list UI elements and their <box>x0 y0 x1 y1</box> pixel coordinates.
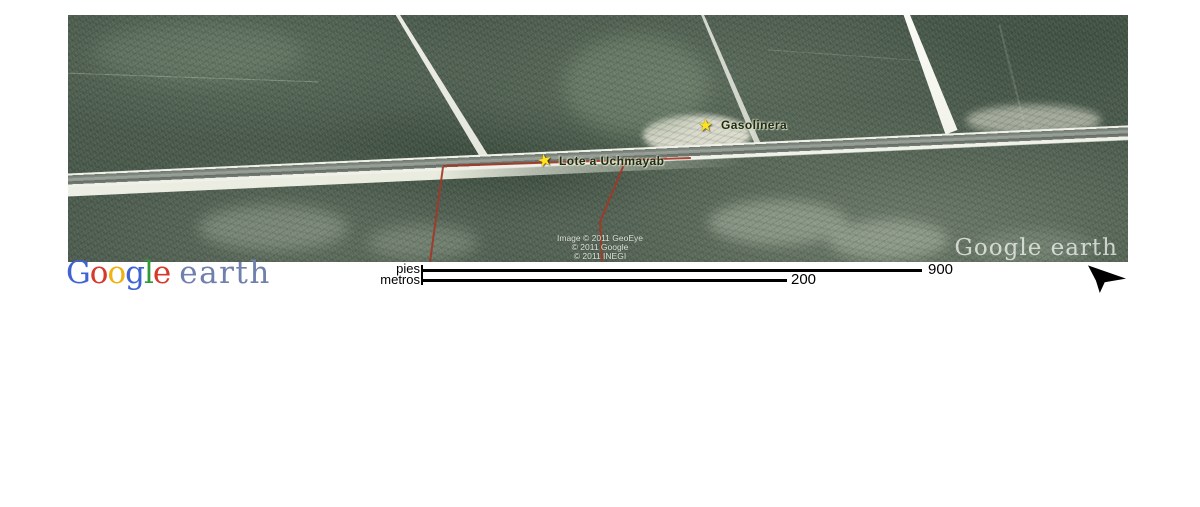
placemark-star-icon[interactable]: ★ <box>698 117 713 134</box>
logo-letter: o <box>90 255 108 291</box>
placemark-label-gasolinera: Gasolinera <box>721 118 787 132</box>
terrain-patch <box>563 35 708 135</box>
google-earth-watermark: Google earth <box>955 235 1118 261</box>
scale-unit-labels: pies metros <box>352 263 420 285</box>
logo-letter: g <box>125 255 144 291</box>
terrain-patch <box>708 200 848 245</box>
scale-label-metros: metros <box>352 274 420 285</box>
logo-letter: l <box>144 255 153 291</box>
faint-trail <box>768 49 928 61</box>
terrain-patch <box>368 225 478 260</box>
dirt-road <box>390 15 491 163</box>
cursor-arrow-icon <box>1088 263 1126 293</box>
logo-letter: o <box>107 255 125 291</box>
map-attribution: Image © 2011 GeoEye © 2011 Google © 2011… <box>540 234 660 261</box>
logo-earth-word: earth <box>179 255 271 291</box>
placemark-label-lote: Lote a Uchmayab <box>559 154 664 168</box>
logo-letter: e <box>153 255 170 291</box>
logo-letter: G <box>66 255 90 291</box>
scale-bar-meters <box>423 279 787 282</box>
scale-value-feet: 900 <box>928 261 953 278</box>
scale-value-meters: 200 <box>791 271 816 288</box>
scale-bar-feet <box>423 269 922 272</box>
terrain-patch <box>828 220 948 260</box>
dirt-road <box>898 15 957 135</box>
terrain-patch <box>198 205 348 250</box>
satellite-map-viewport[interactable]: ★ Gasolinera ★ Lote a Uchmayab Image © 2… <box>68 15 1128 262</box>
placemark-star-icon[interactable]: ★ <box>535 151 553 171</box>
attribution-line: © 2011 INEGI <box>540 252 660 261</box>
google-earth-logo: Googleearth <box>66 256 271 290</box>
